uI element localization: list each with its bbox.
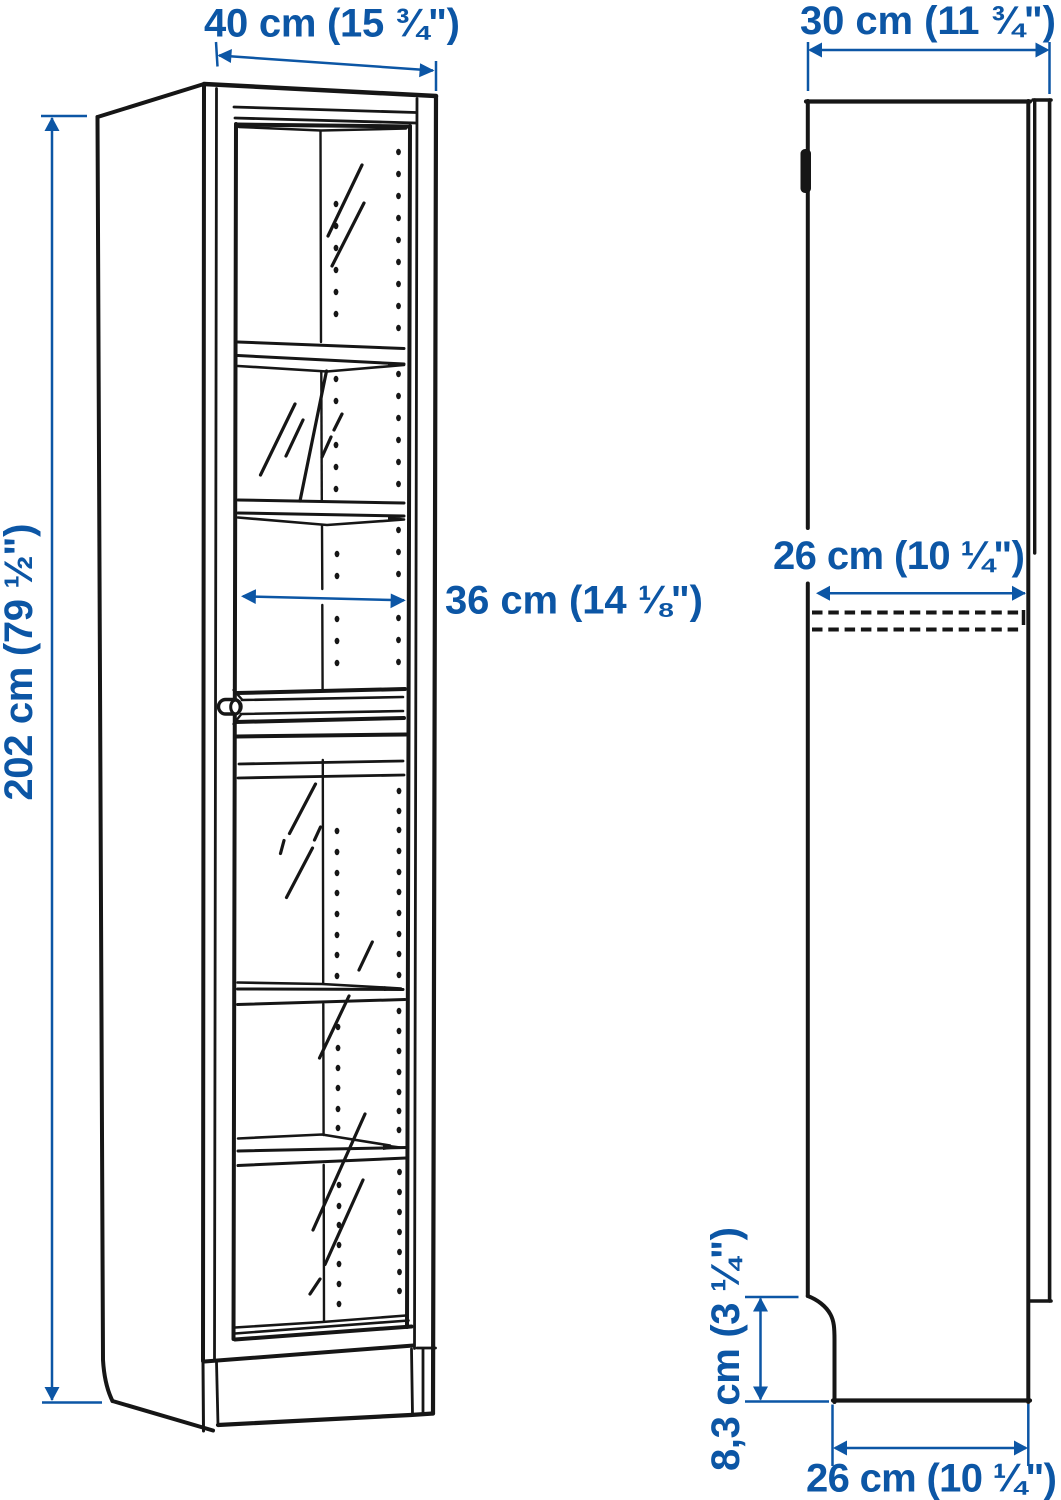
- svg-text:40 cm (15 ¾"): 40 cm (15 ¾"): [204, 2, 460, 46]
- svg-text:26 cm (10 ¼"): 26 cm (10 ¼"): [773, 534, 1025, 578]
- svg-text:26 cm (10 ¼"): 26 cm (10 ¼"): [806, 1457, 1057, 1500]
- svg-text:36 cm (14 ⅛"): 36 cm (14 ⅛"): [445, 579, 703, 623]
- svg-text:8,3 cm (3 ¼"): 8,3 cm (3 ¼"): [704, 1227, 748, 1471]
- svg-text:30 cm (11 ¾"): 30 cm (11 ¾"): [800, 0, 1056, 43]
- svg-text:202 cm (79 ½"): 202 cm (79 ½"): [0, 524, 41, 801]
